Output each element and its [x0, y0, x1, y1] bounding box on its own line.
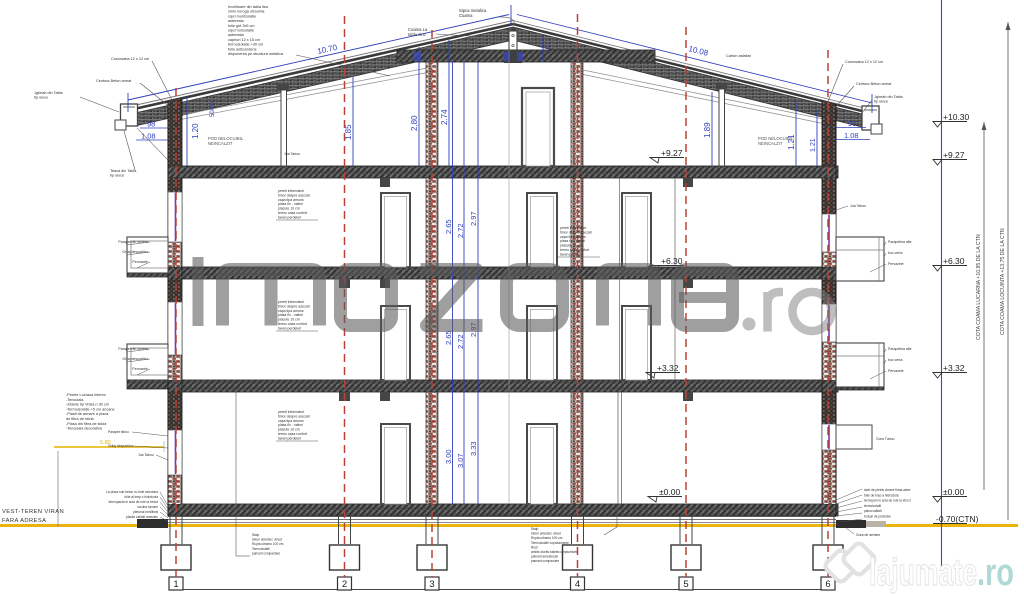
- svg-text:Parapet stilou: Parapet stilou: [108, 430, 129, 434]
- svg-text:timor despre asezati: timor despre asezati: [560, 230, 592, 234]
- svg-text:Grilaj despartitor: Grilaj despartitor: [122, 250, 149, 254]
- svg-text:+3.32: +3.32: [657, 363, 679, 373]
- svg-text:pereti informatori: pereti informatori: [278, 300, 304, 304]
- svg-text:strat de pietris ciment firma: strat de pietris ciment firma atare: [864, 488, 911, 492]
- svg-text:3.07: 3.07: [456, 453, 465, 468]
- svg-text:plasa fix - valimi: plasa fix - valimi: [278, 202, 303, 206]
- svg-text:simn noroga orizontal: simn noroga orizontal: [228, 10, 264, 14]
- svg-text:2.72: 2.72: [456, 223, 465, 238]
- svg-text:Invelitoare din tabla lisa: Invelitoare din tabla lisa: [228, 5, 269, 9]
- svg-text:-Zidarie tip Vrisia n 30 cm: -Zidarie tip Vrisia n 30 cm: [66, 403, 109, 407]
- svg-text:termoizolatie +30 cm: termoizolatie +30 cm: [228, 43, 263, 47]
- svg-text:Jua Tabou: Jua Tabou: [138, 453, 154, 457]
- svg-text:termopanta in suta de rute la: termopanta in suta de rute la trecut: [109, 500, 159, 504]
- svg-text:termo casa confort: termo casa confort: [278, 211, 307, 215]
- svg-text:trotuar de protectie: trotuar de protectie: [864, 515, 891, 519]
- svg-text:-Perete Lucraua interior: -Perete Lucraua interior: [66, 393, 107, 397]
- svg-text:folie al krep o hidroizola: folie al krep o hidroizola: [125, 495, 159, 499]
- svg-text:tip uluce: tip uluce: [874, 100, 888, 104]
- svg-text:La placa sub beton cu folie al: La placa sub beton cu folie alveolara: [106, 490, 158, 494]
- svg-text:1.08: 1.08: [141, 132, 156, 141]
- svg-text:pietonal echilibrat: pietonal echilibrat: [133, 510, 158, 514]
- svg-text:termo casa confort: termo casa confort: [278, 432, 307, 436]
- svg-text:±0.00: ±0.00: [659, 487, 680, 497]
- svg-text:folie anticondens: folie anticondens: [228, 47, 257, 51]
- svg-text:VEST-TEREN VIRAN: VEST-TEREN VIRAN: [2, 509, 64, 515]
- svg-text:2.97: 2.97: [469, 211, 478, 226]
- svg-text:10.08: 10.08: [688, 44, 710, 58]
- svg-text:.ro: .ro: [977, 552, 1014, 594]
- svg-text:placute 10 cm: placute 10 cm: [560, 244, 582, 248]
- svg-text:Cosoroaba 12 x 12 cm: Cosoroaba 12 x 12 cm: [111, 57, 149, 61]
- svg-text:COTA COAMA LUCARNA +10.95 DE: COTA COAMA LUCARNA +10.95 DE LA CTN: [976, 234, 982, 340]
- svg-text:1: 1: [173, 579, 178, 590]
- svg-text:NEINCALZIT: NEINCALZIT: [208, 141, 233, 146]
- svg-text:Grilaj despartitor: Grilaj despartitor: [108, 444, 134, 448]
- svg-text:1.17: 1.17: [545, 42, 551, 52]
- svg-text:lajumate: lajumate: [869, 552, 977, 594]
- svg-text:pereti informatori: pereti informatori: [278, 410, 304, 414]
- svg-text:2.74: 2.74: [440, 109, 449, 125]
- svg-text:Pervazele: Pervazele: [132, 367, 148, 371]
- svg-text:3: 3: [429, 579, 434, 590]
- svg-text:Teava din Tabla: Teava din Tabla: [110, 169, 137, 173]
- svg-text:termoizolatii: termoizolatii: [864, 504, 881, 508]
- svg-text:NEINCALZIT: NEINCALZIT: [758, 141, 783, 146]
- svg-text:2.65: 2.65: [444, 330, 453, 345]
- svg-text:tavan perdeluri: tavan perdeluri: [278, 215, 301, 219]
- svg-text:tip uluce: tip uluce: [34, 96, 48, 100]
- svg-text:timor despre asezati: timor despre asezati: [278, 414, 310, 418]
- svg-text:+9.27: +9.27: [661, 148, 683, 158]
- svg-text:-Termoizolatie +5 cm ancane: -Termoizolatie +5 cm ancane: [66, 407, 115, 411]
- svg-text:sipci horizolatie: sipci horizolatie: [228, 29, 254, 33]
- svg-text:2: 2: [342, 579, 347, 590]
- svg-text:50/20: 50/20: [210, 101, 216, 117]
- svg-text:folie de krep a hidroizola: folie de krep a hidroizola: [864, 493, 899, 497]
- svg-text:tavan perdeluri: tavan perdeluri: [278, 436, 301, 440]
- svg-text:plasa fix - valimi: plasa fix - valimi: [278, 313, 303, 317]
- svg-text:placute 10 cm: placute 10 cm: [278, 207, 300, 211]
- svg-text:Parapet din vedere: Parapet din vedere: [118, 240, 148, 244]
- svg-text:Rupta ultramo 100 cm: Rupta ultramo 100 cm: [252, 542, 284, 546]
- svg-text:1.08: 1.08: [844, 131, 859, 140]
- svg-text:capriori 12 x 15 cm: capriori 12 x 15 cm: [228, 38, 260, 42]
- svg-text:placute 10 cm: placute 10 cm: [278, 428, 300, 432]
- svg-text:placute 10 cm: placute 10 cm: [278, 318, 300, 322]
- svg-text:placa calitati: placa calitati: [864, 509, 882, 513]
- svg-text:termo casa confort: termo casa confort: [560, 248, 589, 252]
- svg-text:plasa fix - valimi: plasa fix - valimi: [560, 239, 585, 243]
- svg-text:tavan perdeluri: tavan perdeluri: [278, 326, 301, 330]
- svg-text:2.65: 2.65: [444, 219, 453, 234]
- svg-text:termopan in suta de rute la st: termopan in suta de rute la struct: [864, 499, 911, 503]
- svg-text:98: 98: [147, 120, 155, 129]
- svg-text:Coama: Coama: [459, 13, 473, 18]
- svg-text:beton amestec umed: beton amestec umed: [531, 532, 561, 536]
- svg-text:tabla zinc: tabla zinc: [408, 32, 426, 37]
- svg-text:Pervazele: Pervazele: [132, 260, 148, 264]
- svg-text:6: 6: [825, 579, 830, 590]
- svg-text:buc certa: buc certa: [888, 358, 902, 362]
- svg-text:2.72: 2.72: [456, 334, 465, 349]
- svg-text:COTA COAMA LOCUINTA +13.75 DE: COTA COAMA LOCUINTA +13.75 DE LA CTN: [1000, 228, 1006, 335]
- svg-text:pamant amestecari: pamant amestecari: [531, 555, 558, 559]
- svg-text:Rost: Rost: [531, 545, 538, 549]
- svg-text:zapa tipa amons: zapa tipa amons: [560, 235, 586, 239]
- svg-text:Gura de aerisire: Gura de aerisire: [856, 533, 880, 537]
- svg-text:tavan perdeluri: tavan perdeluri: [560, 252, 583, 256]
- svg-text:-Tencuiala: -Tencuiala: [66, 398, 84, 402]
- svg-text:Centura Beton armat: Centura Beton armat: [96, 79, 132, 83]
- svg-text:pamant compactare: pamant compactare: [531, 559, 559, 563]
- svg-text:1.20: 1.20: [191, 123, 200, 139]
- svg-text:amilte alortts baletto umplumt: amilte alortts baletto umplumturti: [531, 550, 577, 554]
- svg-text:timor despre asezati: timor despre asezati: [278, 193, 310, 197]
- svg-text:Jua Tabou: Jua Tabou: [284, 152, 300, 156]
- svg-text:pereti informatori: pereti informatori: [278, 189, 304, 193]
- svg-text:4: 4: [575, 579, 580, 590]
- svg-text:1.21: 1.21: [810, 138, 817, 152]
- svg-text:Parapet din vedere: Parapet din vedere: [118, 347, 148, 351]
- svg-text:suruba turnare: suruba turnare: [137, 505, 158, 509]
- svg-text:astereala: astereala: [228, 33, 245, 37]
- svg-text:zapa tipa amons: zapa tipa amons: [278, 419, 304, 423]
- svg-text:timor despre asezati: timor despre asezati: [278, 304, 310, 308]
- svg-text:-Plasti de armare a placa: -Plasti de armare a placa: [66, 412, 109, 416]
- svg-text:sipci montzolatie: sipci montzolatie: [228, 14, 256, 18]
- svg-text:plasa fix - valimi: plasa fix - valimi: [278, 423, 303, 427]
- svg-text:+3.32: +3.32: [943, 363, 965, 373]
- svg-text:dispunerea pe structura metali: dispunerea pe structura metalica: [228, 52, 284, 56]
- svg-text:3.33: 3.33: [469, 441, 478, 456]
- svg-text:+6.30: +6.30: [661, 256, 683, 266]
- svg-text:Jgheab din Tabla: Jgheab din Tabla: [34, 91, 64, 95]
- svg-text:Stalp: Stalp: [531, 527, 538, 531]
- svg-text:placile calitati amestec: placile calitati amestec: [126, 515, 158, 519]
- svg-text:Parapetina alte: Parapetina alte: [888, 347, 912, 351]
- svg-text:zapa tipa amons: zapa tipa amons: [278, 309, 304, 313]
- svg-text:zapa tipa amons: zapa tipa amons: [278, 198, 304, 202]
- svg-text:Pervazele: Pervazele: [888, 369, 904, 373]
- svg-text:+6.30: +6.30: [943, 256, 965, 266]
- svg-text:±0.00: ±0.00: [943, 487, 964, 497]
- svg-text:astereala: astereala: [228, 19, 245, 23]
- svg-text:2.80: 2.80: [410, 115, 419, 131]
- svg-text:Pervazele: Pervazele: [888, 262, 904, 266]
- svg-text:Jgheab din Tabla: Jgheab din Tabla: [874, 95, 904, 99]
- svg-text:-0.70(CTN): -0.70(CTN): [936, 514, 979, 524]
- svg-text:de fibra de sticla: de fibra de sticla: [66, 417, 95, 421]
- svg-text:Termoizolatii: Termoizolatii: [252, 547, 270, 551]
- svg-text:+10.30: +10.30: [943, 112, 970, 122]
- svg-text:pamant compactare: pamant compactare: [252, 551, 280, 555]
- svg-text:+9.27: +9.27: [943, 150, 965, 160]
- svg-text:folie girt 3x5 cm: folie girt 3x5 cm: [228, 24, 255, 28]
- svg-text:termo casa confort: termo casa confort: [278, 322, 307, 326]
- svg-text:1.85: 1.85: [344, 124, 353, 140]
- svg-text:Centura Beton armat: Centura Beton armat: [856, 82, 892, 86]
- svg-text:Carton asfaltat: Carton asfaltat: [726, 54, 752, 58]
- svg-text:Parapetina alte: Parapetina alte: [888, 240, 912, 244]
- svg-text:Rupta ultramo 100 cm: Rupta ultramo 100 cm: [531, 536, 563, 540]
- svg-text:-Plasa din fibra de sticla: -Plasa din fibra de sticla: [66, 422, 107, 426]
- svg-text:Gura Tubou: Gura Tubou: [876, 437, 895, 441]
- svg-text:buc certa: buc certa: [888, 251, 902, 255]
- svg-text:pereti informatori: pereti informatori: [560, 226, 586, 230]
- svg-text:Grilaj despartitor: Grilaj despartitor: [122, 357, 149, 361]
- svg-text:1.89: 1.89: [703, 122, 712, 138]
- svg-text:FARA ADRESA: FARA ADRESA: [2, 518, 46, 524]
- svg-text:Stalp: Stalp: [252, 533, 259, 537]
- svg-text:3.00: 3.00: [444, 449, 453, 464]
- svg-text:98: 98: [848, 119, 856, 128]
- svg-text:5: 5: [683, 579, 688, 590]
- svg-text:Cosoroaba 12 x 12 cm: Cosoroaba 12 x 12 cm: [845, 60, 883, 64]
- svg-text:-Tencuiala decorativa: -Tencuiala decorativa: [66, 427, 103, 431]
- svg-text:beton amestec umed: beton amestec umed: [252, 538, 282, 542]
- svg-text:Termoizolatii vopodamente: Termoizolatii vopodamente: [531, 541, 569, 545]
- svg-text:Jua Tabou: Jua Tabou: [850, 204, 866, 208]
- svg-text:tip uluce: tip uluce: [110, 174, 124, 178]
